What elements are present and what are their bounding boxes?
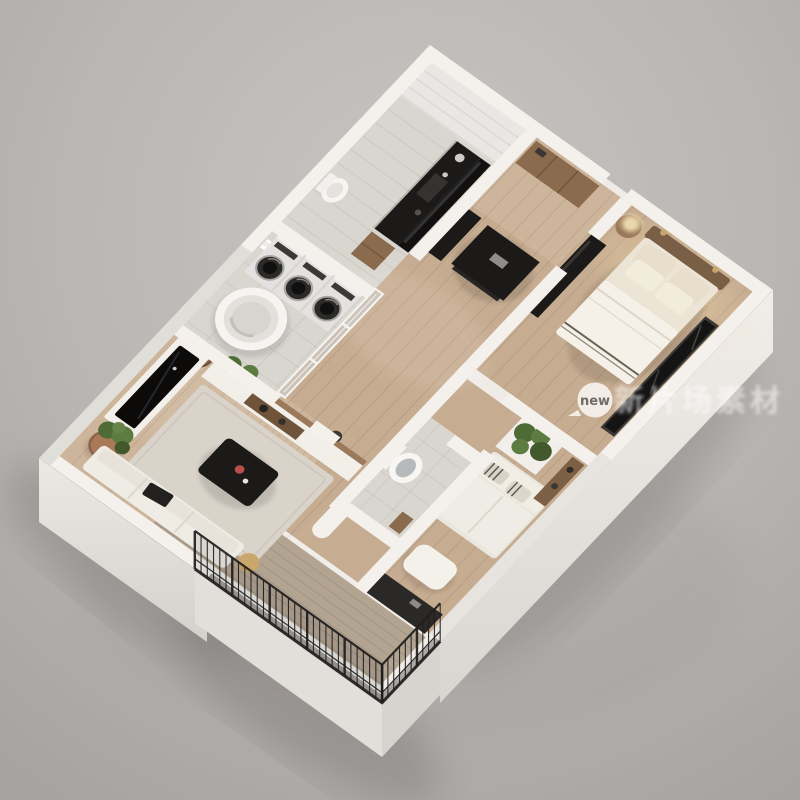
watermark-logo-text: new	[580, 394, 610, 409]
floorplan-render: new 新片场素材	[0, 0, 800, 800]
watermark-text: 新片场素材	[614, 384, 784, 419]
watermark: new 新片场素材	[568, 383, 784, 420]
floorplan-svg: new 新片场素材	[0, 0, 800, 800]
